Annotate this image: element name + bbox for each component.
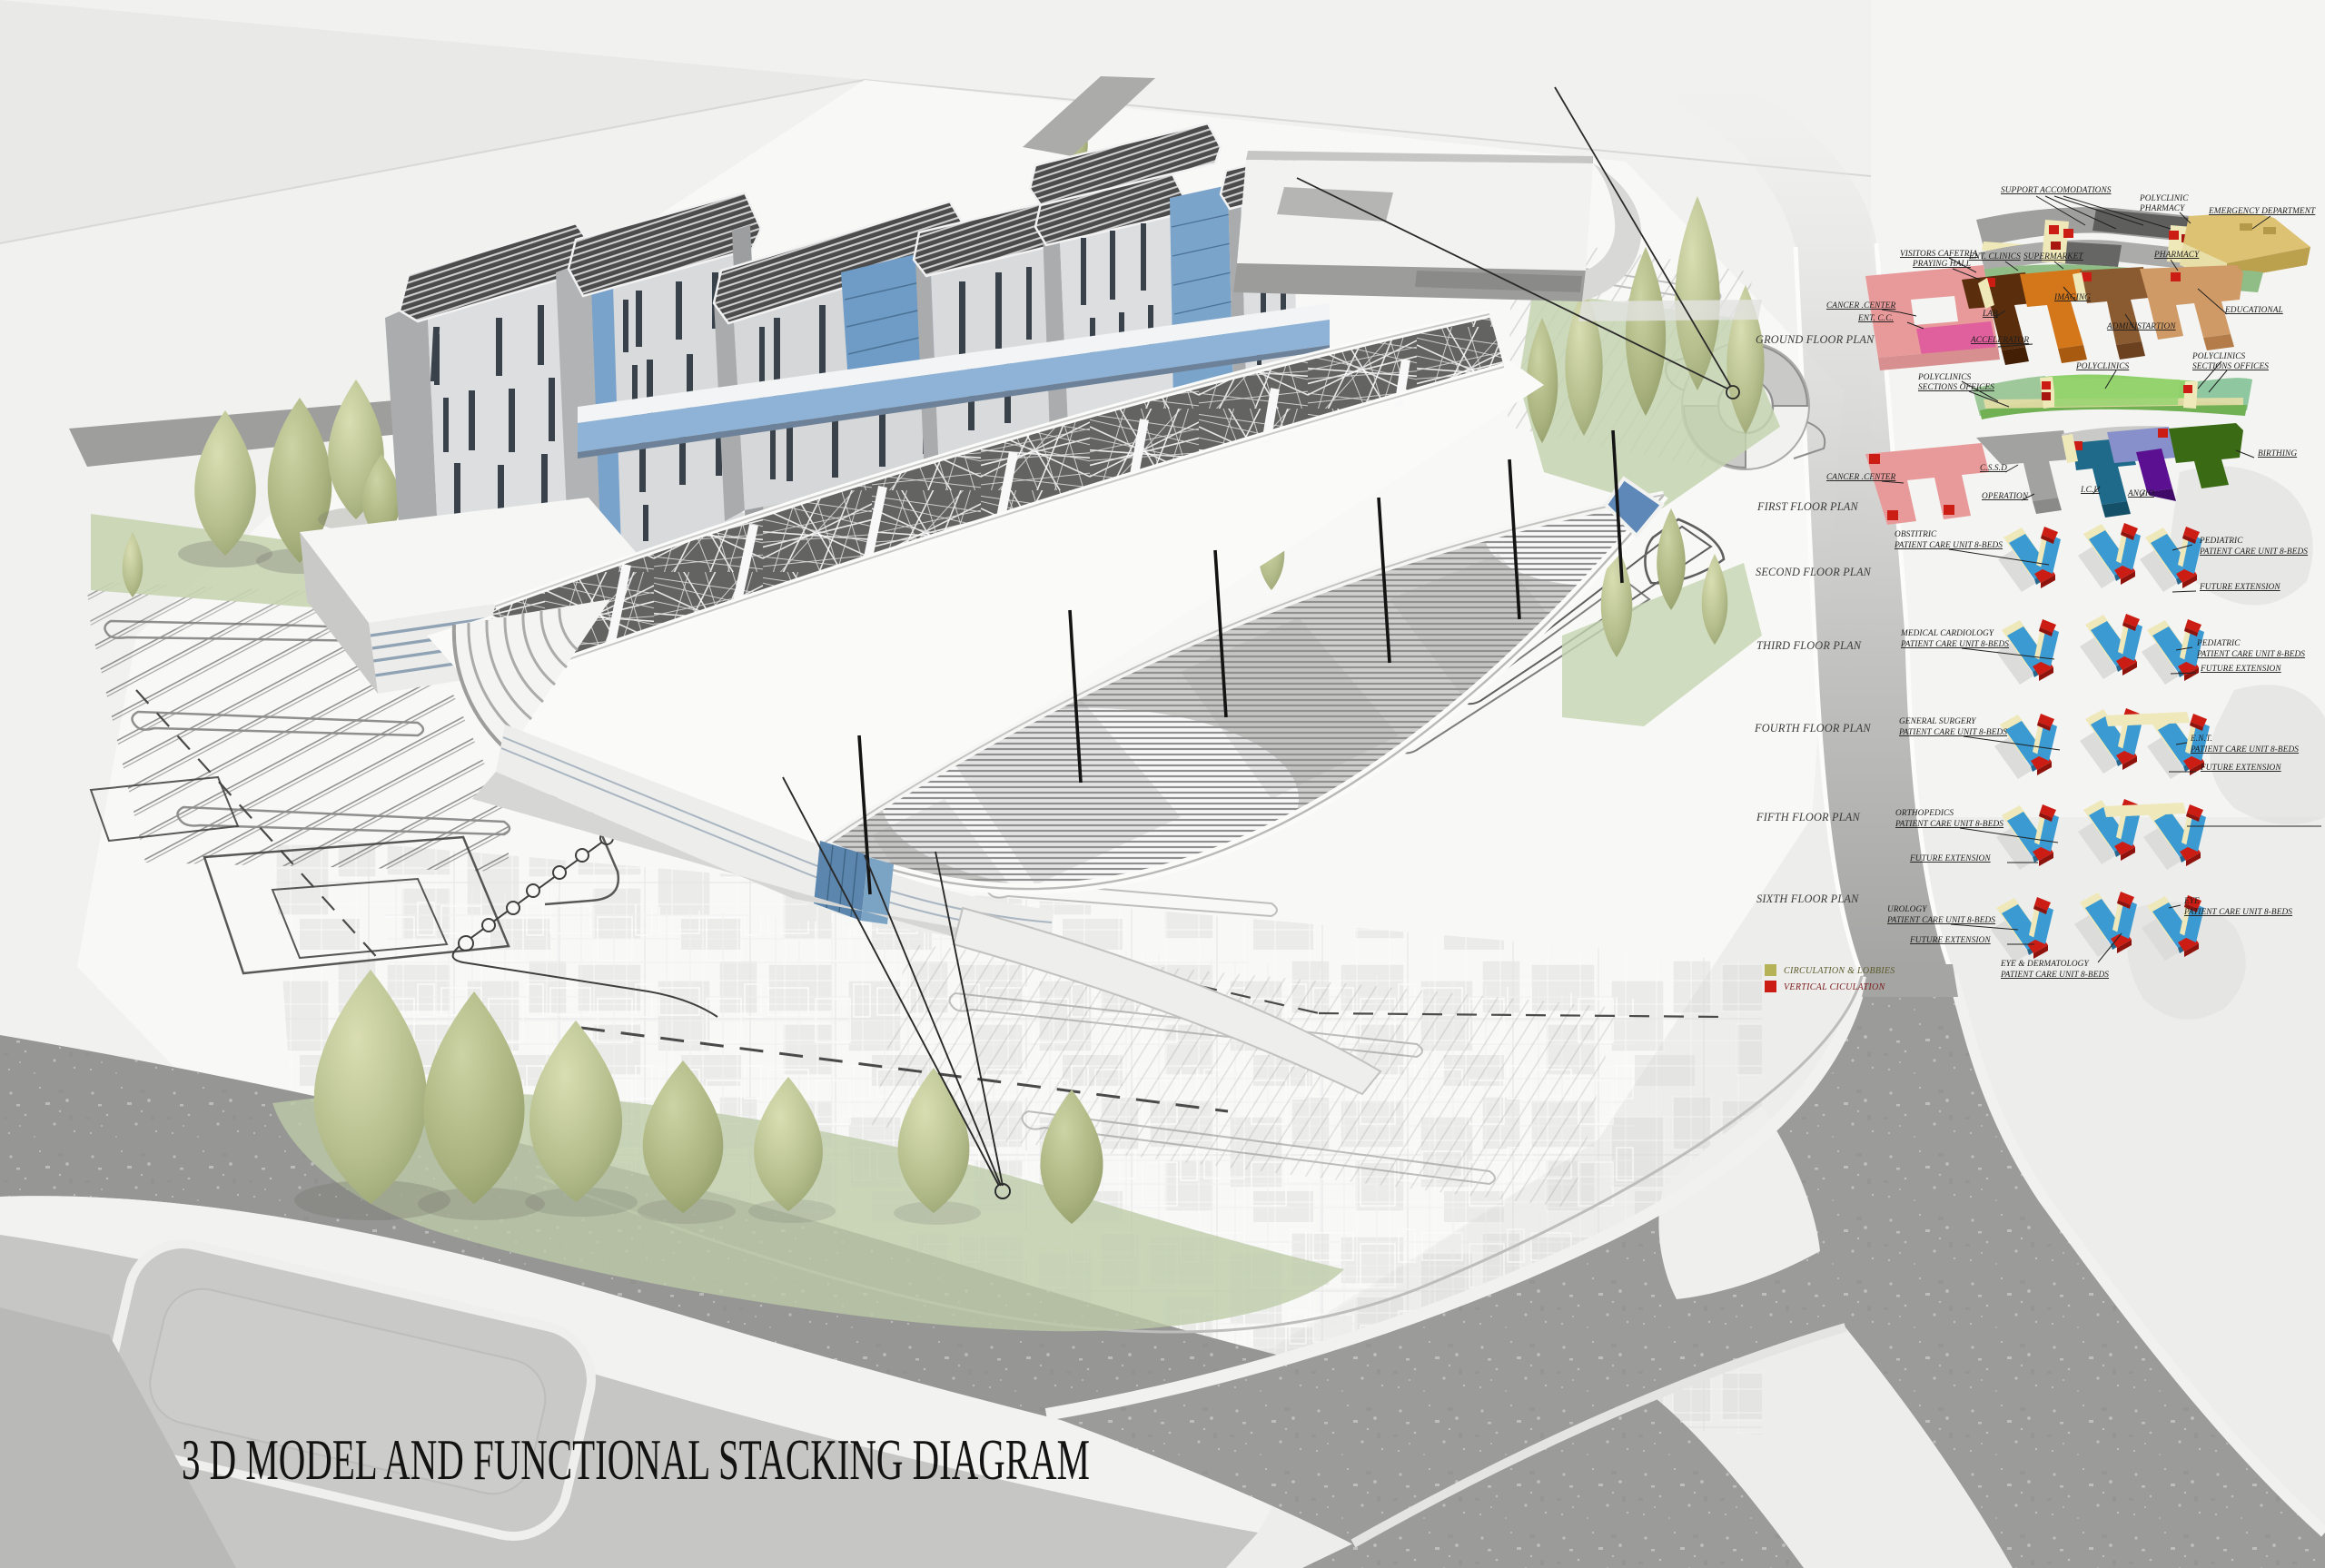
svg-text:PATIENT CARE UNIT 8-BEDS: PATIENT CARE UNIT 8-BEDS bbox=[2199, 547, 2308, 557]
svg-text:VERTICAL CICULATION: VERTICAL CICULATION bbox=[1784, 982, 1886, 992]
svg-text:PATIENT CARE UNIT 8-BEDS: PATIENT CARE UNIT 8-BEDS bbox=[2183, 908, 2292, 917]
svg-text:GENERAL SURGERY: GENERAL SURGERY bbox=[1899, 717, 1976, 726]
svg-text:PATIENT CARE UNIT 8-BEDS: PATIENT CARE UNIT 8-BEDS bbox=[2190, 745, 2299, 754]
svg-text:SECOND FLOOR PLAN: SECOND FLOOR PLAN bbox=[1756, 566, 1872, 578]
svg-text:E.N.T.: E.N.T. bbox=[2190, 735, 2212, 744]
svg-text:FUTURE EXTENSION: FUTURE EXTENSION bbox=[2200, 665, 2281, 674]
svg-text:PRAYING HALL: PRAYING HALL bbox=[1912, 260, 1971, 269]
svg-text:3 D MODEL AND FUNCTIONAL STACK: 3 D MODEL AND FUNCTIONAL STACKING DIAGRA… bbox=[182, 1428, 1090, 1492]
svg-text:PEDIATRIC: PEDIATRIC bbox=[2199, 537, 2243, 546]
svg-text:I.C.U: I.C.U bbox=[2080, 486, 2101, 495]
svg-text:CIRCULATION & LOBBIES: CIRCULATION & LOBBIES bbox=[1784, 966, 1895, 976]
svg-text:EYE: EYE bbox=[2183, 897, 2200, 906]
svg-text:IMAGING: IMAGING bbox=[2053, 293, 2091, 302]
svg-text:ENT. CLINICS: ENT. CLINICS bbox=[1968, 252, 2021, 261]
svg-text:FUTURE EXTENSION: FUTURE EXTENSION bbox=[2199, 583, 2280, 592]
svg-text:PATIENT CARE UNIT 8-BEDS: PATIENT CARE UNIT 8-BEDS bbox=[1895, 820, 2003, 829]
svg-text:EMERGENCY DEPARTMENT: EMERGENCY DEPARTMENT bbox=[2208, 207, 2316, 216]
svg-text:EDUCATIONAL: EDUCATIONAL bbox=[2224, 306, 2283, 315]
svg-text:ENT. C.C.: ENT. C.C. bbox=[1857, 314, 1894, 323]
svg-text:FOURTH FLOOR PLAN: FOURTH FLOOR PLAN bbox=[1754, 722, 1871, 735]
svg-text:FIFTH FLOOR PLAN: FIFTH FLOOR PLAN bbox=[1756, 811, 1860, 823]
svg-text:POLYCLINICS: POLYCLINICS bbox=[2075, 362, 2130, 371]
svg-text:ACCELERATOR: ACCELERATOR bbox=[1970, 336, 2029, 345]
svg-text:PHARMACY: PHARMACY bbox=[2139, 204, 2185, 213]
svg-text:PATIENT CARE UNIT 8-BEDS: PATIENT CARE UNIT 8-BEDS bbox=[1898, 728, 2007, 737]
svg-text:FUTURE EXTENSION: FUTURE EXTENSION bbox=[1909, 936, 1991, 945]
svg-text:PATIENT CARE UNIT 8-BEDS: PATIENT CARE UNIT 8-BEDS bbox=[1900, 640, 2009, 649]
svg-text:PATIENT CARE UNIT 8-BEDS: PATIENT CARE UNIT 8-BEDS bbox=[2196, 650, 2305, 659]
svg-text:SUPERMARKET: SUPERMARKET bbox=[2023, 252, 2083, 261]
svg-text:PEDIATRIC: PEDIATRIC bbox=[2196, 639, 2241, 648]
svg-text:SIXTH FLOOR PLAN: SIXTH FLOOR PLAN bbox=[1756, 892, 1859, 905]
svg-text:FUTURE EXTENSION: FUTURE EXTENSION bbox=[1909, 854, 1991, 863]
svg-text:MEDICAL CARDIOLOGY: MEDICAL CARDIOLOGY bbox=[1900, 629, 1994, 638]
svg-text:THIRD FLOOR PLAN: THIRD FLOOR PLAN bbox=[1756, 639, 1862, 652]
svg-text:OBSTITRIC: OBSTITRIC bbox=[1895, 530, 1937, 539]
svg-text:VISITORS CAFETRIA: VISITORS CAFETRIA bbox=[1900, 250, 1978, 259]
svg-text:FUTURE EXTENSION: FUTURE EXTENSION bbox=[2200, 764, 2281, 773]
svg-text:UROLOGY: UROLOGY bbox=[1887, 905, 1927, 914]
svg-text:ORTHOPEDICS: ORTHOPEDICS bbox=[1895, 809, 1954, 818]
svg-text:C.S.S.D: C.S.S.D bbox=[1980, 464, 2007, 473]
svg-text:ADMINISTARTION: ADMINISTARTION bbox=[2106, 322, 2176, 331]
svg-text:GROUND FLOOR PLAN: GROUND FLOOR PLAN bbox=[1756, 333, 1875, 346]
svg-text:PATIENT CARE UNIT 8-BEDS: PATIENT CARE UNIT 8-BEDS bbox=[1894, 541, 2003, 550]
svg-text:PATIENT CARE UNIT 8-BEDS: PATIENT CARE UNIT 8-BEDS bbox=[2000, 971, 2109, 980]
svg-text:SECTIONS OFFICES: SECTIONS OFFICES bbox=[1918, 383, 1994, 392]
svg-text:PHARMACY: PHARMACY bbox=[2153, 251, 2200, 260]
svg-text:EYE & DERMATOLOGY: EYE & DERMATOLOGY bbox=[2000, 960, 2089, 969]
svg-text:POLYCLINICS: POLYCLINICS bbox=[1917, 373, 1972, 382]
svg-text:CANCER .CENTER: CANCER .CENTER bbox=[1826, 473, 1896, 482]
svg-text:ANGIO: ANGIO bbox=[2127, 489, 2154, 498]
svg-text:POLYCLINICS: POLYCLINICS bbox=[2191, 352, 2246, 361]
svg-text:SECTIONS OFFICES: SECTIONS OFFICES bbox=[2192, 362, 2269, 371]
svg-text:CANCER .CENTER: CANCER .CENTER bbox=[1826, 301, 1896, 311]
svg-text:FIRST FLOOR PLAN: FIRST FLOOR PLAN bbox=[1756, 500, 1859, 513]
svg-text:SUPPORT ACCOMODATIONS: SUPPORT ACCOMODATIONS bbox=[2001, 186, 2112, 195]
svg-text:PATIENT CARE UNIT 8-BEDS: PATIENT CARE UNIT 8-BEDS bbox=[1886, 916, 1995, 925]
svg-text:BIRTHING: BIRTHING bbox=[2258, 449, 2297, 459]
svg-text:POLYCLINIC: POLYCLINIC bbox=[2139, 194, 2189, 203]
